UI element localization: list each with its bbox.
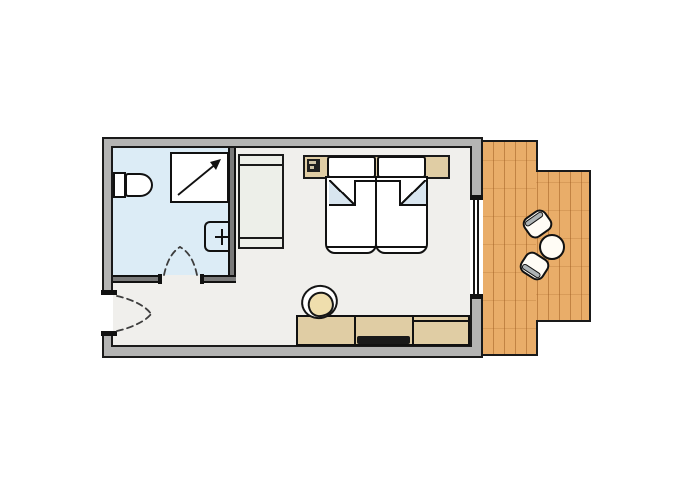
door-jamb [200, 274, 204, 284]
door-jamb [101, 331, 117, 336]
duvet-fold-left [329, 180, 356, 206]
duvet-foot-line [377, 246, 426, 248]
door-jamb [101, 290, 117, 295]
tap-icon [215, 236, 229, 238]
pillow-left [327, 156, 376, 178]
door-jamb [158, 274, 162, 284]
sideboard-counter-edge [412, 320, 470, 322]
duvet-edge [377, 180, 399, 182]
balcony-deck [483, 140, 538, 356]
toilet-bowl [125, 173, 153, 197]
phone-icon [307, 159, 320, 172]
pillow-right [377, 156, 426, 178]
wardrobe-rail [240, 237, 282, 239]
wardrobe [238, 154, 284, 249]
duvet-edge [356, 180, 377, 182]
duvet-fold-right [399, 180, 426, 206]
wardrobe-rail [240, 164, 282, 166]
bathroom-partition-wall [228, 148, 236, 283]
balcony-table [539, 234, 565, 260]
tv [357, 336, 410, 344]
bathroom-wall-right-of-door [200, 275, 236, 283]
window-glazing-line [477, 200, 479, 294]
duvet-foot-line [327, 246, 375, 248]
floor-plan-canvas [0, 0, 700, 500]
window-jamb [470, 294, 483, 299]
bathroom-wall-left-of-door [113, 275, 162, 283]
shower-tray [170, 152, 229, 203]
sideboard-divider [354, 315, 356, 346]
entry-door-opening [100, 295, 113, 331]
window-glazing-line [473, 200, 475, 294]
